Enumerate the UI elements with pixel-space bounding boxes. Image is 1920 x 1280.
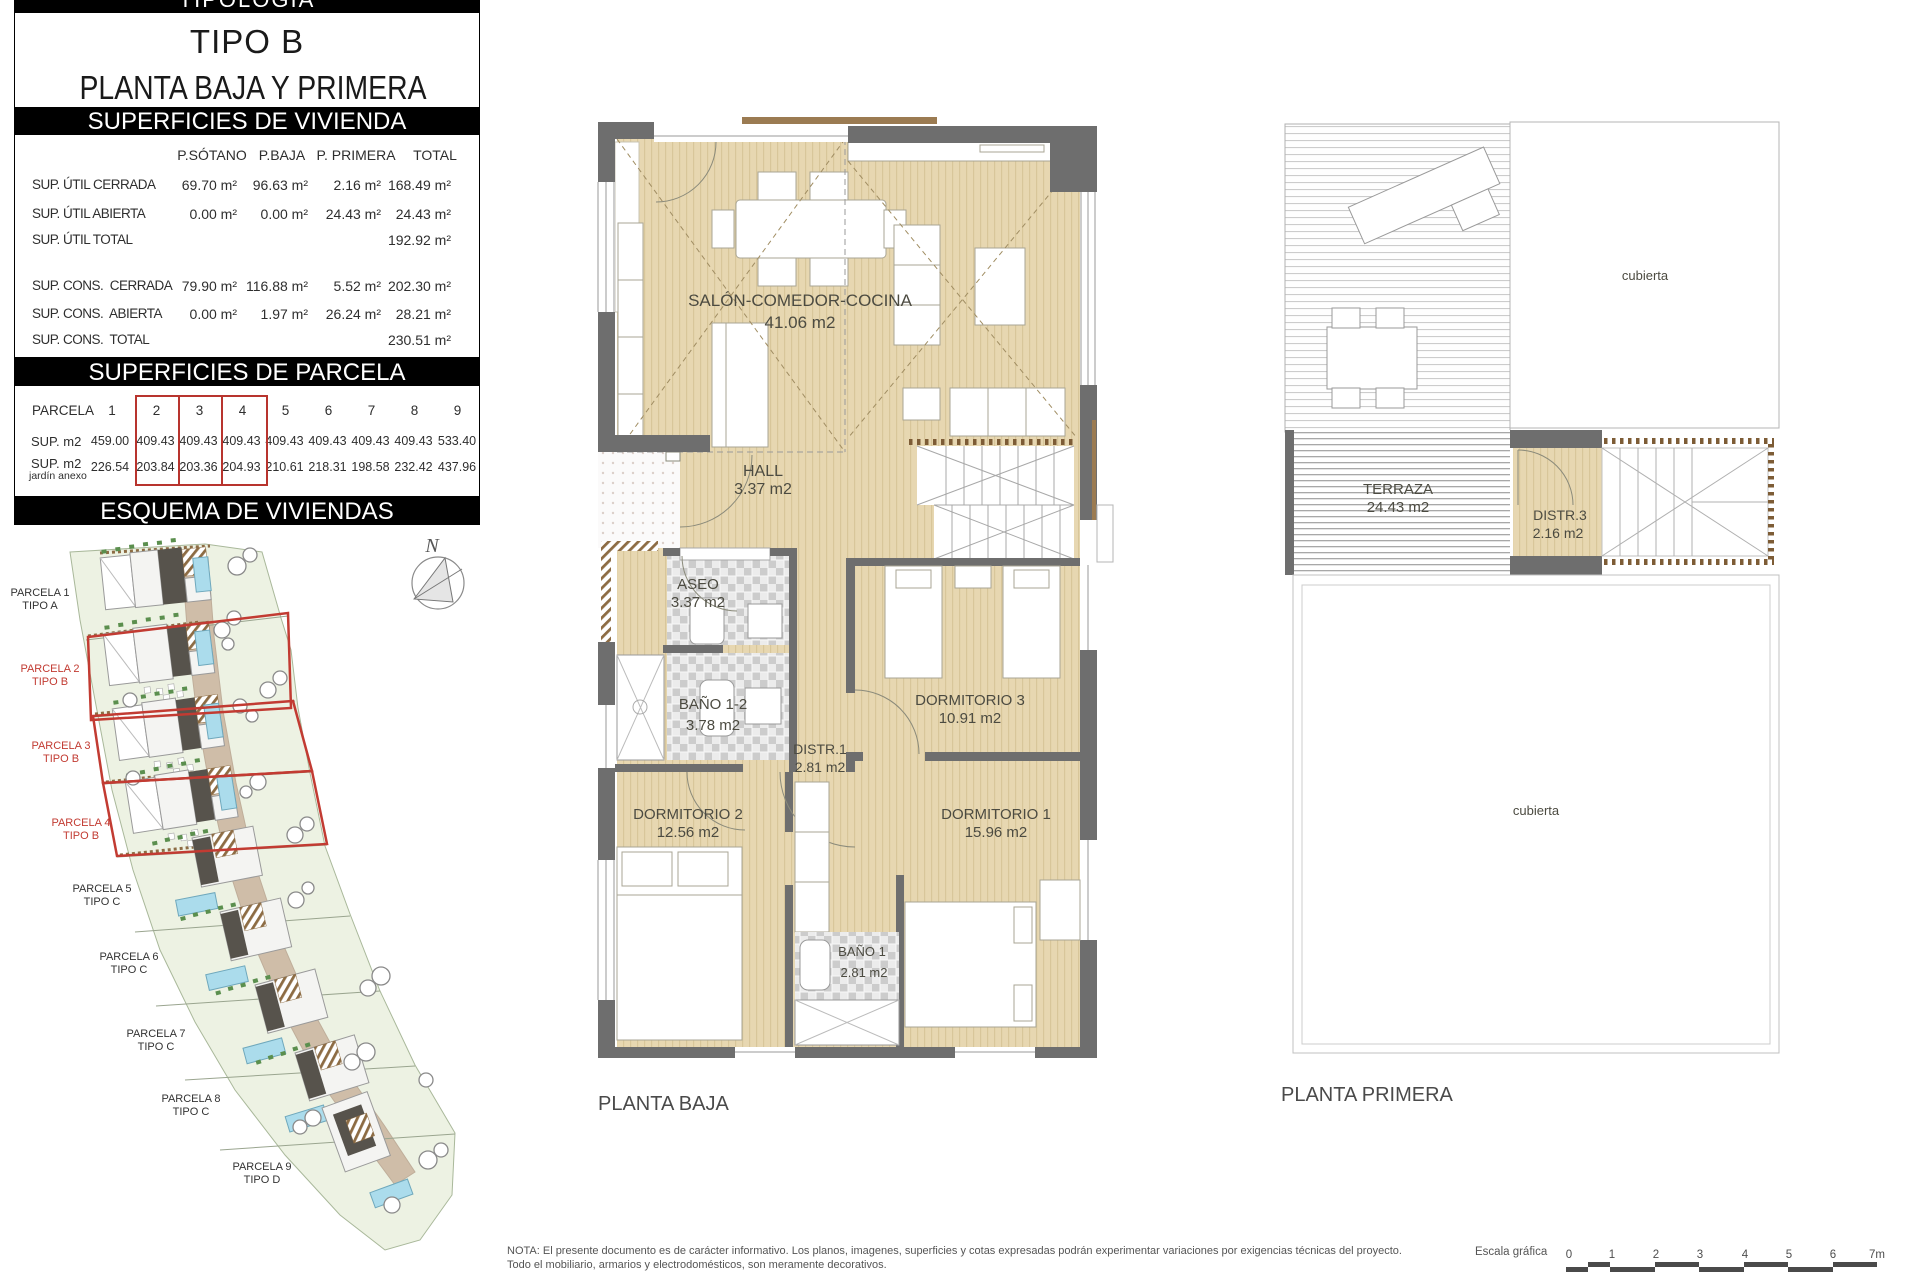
svg-text:41.06 m2: 41.06 m2 xyxy=(765,313,836,332)
svg-text:3.37 m2: 3.37 m2 xyxy=(734,481,792,498)
svg-text:PARCELA 7: PARCELA 7 xyxy=(126,1028,185,1040)
svg-text:PARCELA 9: PARCELA 9 xyxy=(232,1161,291,1173)
svg-text:3.78 m2: 3.78 m2 xyxy=(686,717,740,734)
svg-text:PARCELA 2: PARCELA 2 xyxy=(20,663,79,675)
svg-text:DORMITORIO 2: DORMITORIO 2 xyxy=(633,806,743,823)
svg-text:2: 2 xyxy=(1653,1249,1659,1261)
svg-text:TIPO C: TIPO C xyxy=(84,896,121,908)
svg-text:TIPO B: TIPO B xyxy=(32,676,68,688)
svg-text:PARCELA 5: PARCELA 5 xyxy=(72,883,131,895)
svg-text:PARCELA 3: PARCELA 3 xyxy=(31,740,90,752)
svg-text:PARCELA 8: PARCELA 8 xyxy=(161,1093,220,1105)
svg-text:BAÑO 1-2: BAÑO 1-2 xyxy=(679,696,747,713)
svg-text:N: N xyxy=(424,535,440,557)
svg-text:DORMITORIO 3: DORMITORIO 3 xyxy=(915,692,1025,709)
svg-text:DISTR.3: DISTR.3 xyxy=(1533,507,1587,523)
svg-text:ASEO: ASEO xyxy=(677,576,719,593)
svg-text:10.91 m2: 10.91 m2 xyxy=(939,710,1002,727)
svg-text:7m: 7m xyxy=(1869,1249,1885,1261)
svg-text:PLANTA BAJA: PLANTA BAJA xyxy=(598,1093,729,1115)
svg-text:HALL: HALL xyxy=(743,463,783,480)
svg-text:2.81 m2: 2.81 m2 xyxy=(795,759,846,775)
svg-text:24.43 m2: 24.43 m2 xyxy=(1367,499,1430,516)
svg-text:15.96 m2: 15.96 m2 xyxy=(965,824,1028,841)
svg-text:SALÓN-COMEDOR-COCINA: SALÓN-COMEDOR-COCINA xyxy=(688,291,913,310)
svg-text:6: 6 xyxy=(1830,1249,1836,1261)
svg-text:PARCELA 1: PARCELA 1 xyxy=(10,587,69,599)
svg-text:1: 1 xyxy=(1609,1249,1615,1261)
svg-text:TIPO B: TIPO B xyxy=(43,753,79,765)
svg-text:cubierta: cubierta xyxy=(1513,803,1560,818)
svg-text:TIPO B: TIPO B xyxy=(63,830,99,842)
svg-text:TIPO C: TIPO C xyxy=(138,1041,175,1053)
svg-text:TIPO C: TIPO C xyxy=(173,1106,210,1118)
svg-text:2.81 m2: 2.81 m2 xyxy=(841,965,888,980)
svg-text:DORMITORIO 1: DORMITORIO 1 xyxy=(941,806,1051,823)
svg-text:0: 0 xyxy=(1566,1249,1572,1261)
svg-text:BAÑO 1: BAÑO 1 xyxy=(838,944,886,959)
svg-text:TIPO A: TIPO A xyxy=(22,600,58,612)
svg-text:PLANTA PRIMERA: PLANTA PRIMERA xyxy=(1281,1084,1454,1106)
svg-text:TIPO D: TIPO D xyxy=(244,1174,281,1186)
svg-text:cubierta: cubierta xyxy=(1622,268,1669,283)
svg-text:TIPO C: TIPO C xyxy=(111,964,148,976)
svg-text:5: 5 xyxy=(1786,1249,1792,1261)
svg-text:4: 4 xyxy=(1742,1249,1749,1261)
svg-text:PARCELA 6: PARCELA 6 xyxy=(99,951,158,963)
svg-text:2.16 m2: 2.16 m2 xyxy=(1533,525,1584,541)
svg-text:12.56 m2: 12.56 m2 xyxy=(657,824,720,841)
svg-text:3: 3 xyxy=(1697,1249,1703,1261)
svg-text:TERRAZA: TERRAZA xyxy=(1363,481,1433,498)
svg-text:PARCELA 4: PARCELA 4 xyxy=(51,817,110,829)
svg-text:DISTR.1: DISTR.1 xyxy=(793,741,847,757)
svg-text:3.37 m2: 3.37 m2 xyxy=(671,594,725,611)
